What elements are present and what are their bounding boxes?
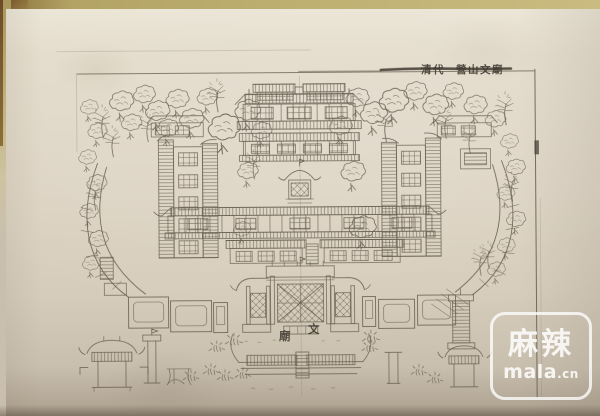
gate-label-char-miao: 廟: [279, 328, 291, 344]
photo-bottom-shadow: [0, 405, 600, 416]
courtyard-pavilion: [279, 159, 321, 203]
caption-title: 營山文廟: [456, 63, 504, 78]
mala-logo: 麻辣: [508, 329, 574, 361]
caption-dynasty: 清代: [421, 63, 445, 78]
gate-label: 廟 文: [277, 321, 325, 345]
lower-flanking-halls: [226, 239, 404, 264]
mala-domain-text: mala.cn: [503, 361, 579, 383]
ceremonial-gate-hall: [154, 206, 446, 239]
main-hall: [235, 87, 363, 134]
gate-label-char-wen: 文: [308, 321, 320, 337]
west-wing: [157, 134, 218, 258]
southwest-pavilion: [79, 329, 192, 416]
east-bottom-structures: [384, 289, 492, 388]
plate-caption: 清代 營山文廟: [421, 63, 504, 78]
mala-tld: .cn: [557, 367, 579, 381]
mala-domain: mala: [503, 361, 557, 383]
east-wing: [381, 133, 442, 257]
book-page-photo: 清代 營山文廟 廟 文 麻辣 mala.cn: [0, 0, 600, 416]
mala-watermark: 麻辣 mala.cn: [490, 312, 592, 400]
